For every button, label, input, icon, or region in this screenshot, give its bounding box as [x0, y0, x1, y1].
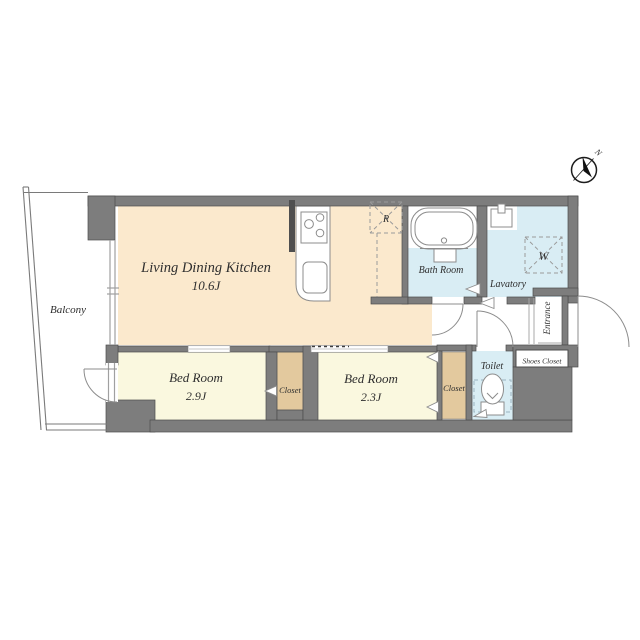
washer-label: W: [539, 249, 550, 263]
balcony-label: Balcony: [50, 304, 86, 316]
bath-label: Bath Room: [419, 265, 464, 276]
door-entrance: [578, 296, 629, 347]
bedroom1-size: 2.9J: [186, 389, 207, 403]
door-ldk-hall: [432, 304, 463, 335]
floor-plan: N Living Dining Kitchen 10.6J Bed Room 2…: [0, 0, 640, 640]
entrance-label: Entrance: [542, 302, 552, 336]
closet1-floor: [277, 352, 303, 410]
ldk-size: 10.6J: [192, 278, 222, 293]
window-ldk-west: [107, 240, 119, 345]
kitchen-sink: [303, 262, 327, 293]
bedroom2-label: Bed Room: [344, 371, 398, 386]
ldk-label: Living Dining Kitchen: [140, 260, 271, 276]
sliding-door-bedroom2: [311, 346, 388, 353]
refrigerator-label: R: [382, 214, 389, 225]
sliding-door-bedroom1: [188, 346, 230, 353]
floor-plan-page: N Living Dining Kitchen 10.6J Bed Room 2…: [0, 0, 640, 640]
bedroom2-floor: [318, 352, 437, 420]
bedroom2-size: 2.3J: [361, 390, 382, 404]
kitchen-partition-wall: [289, 200, 295, 252]
lavatory-label: Lavatory: [489, 279, 527, 290]
bedroom1-label: Bed Room: [169, 370, 223, 385]
shoes-closet-label: Shoes Closet: [522, 357, 562, 366]
closet1-label: Closet: [279, 385, 301, 395]
ldk-floor-ext: [402, 304, 432, 345]
compass-north-label: N: [592, 146, 605, 159]
toilet-label: Toilet: [481, 361, 504, 372]
compass-north-icon: N: [572, 146, 605, 183]
stove: [301, 212, 327, 243]
kitchen-unit: [296, 206, 330, 301]
door-toilet: [477, 311, 513, 347]
closet2-label: Closet: [443, 383, 465, 393]
